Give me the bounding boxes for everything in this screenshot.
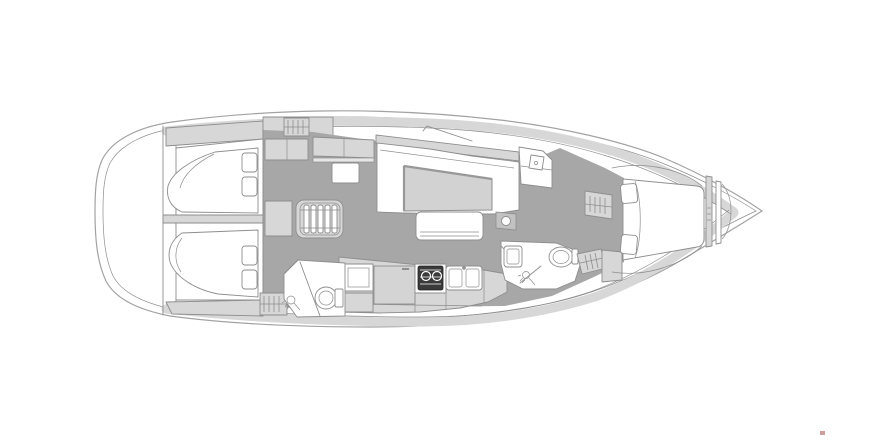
aft-head xyxy=(282,260,345,317)
companionway-stairs xyxy=(296,200,343,238)
aft-head-room xyxy=(284,260,345,317)
pillow xyxy=(242,153,257,172)
deck-plate-icon xyxy=(502,217,511,226)
watermark-dot xyxy=(820,431,825,435)
pillow xyxy=(242,246,257,265)
bow-bulkhead xyxy=(706,176,712,247)
locker-cabinet xyxy=(265,139,308,160)
stair-step xyxy=(325,205,330,233)
pillow xyxy=(620,183,638,203)
forward-cabinet xyxy=(602,250,622,282)
bow-shelf xyxy=(716,181,721,244)
pillow xyxy=(620,234,638,254)
nav-seat-edge xyxy=(313,158,374,162)
aft-deck-strip-starboard xyxy=(166,300,263,316)
aft-cabin-port xyxy=(168,139,263,215)
toilet-icon xyxy=(549,247,573,267)
toilet-tank xyxy=(335,289,343,307)
fridge-icon xyxy=(374,266,415,304)
deck-plan xyxy=(0,0,890,446)
hanging-locker-port xyxy=(284,118,309,136)
stair-step xyxy=(304,205,309,233)
stair-step xyxy=(318,205,323,233)
nav-seat xyxy=(313,137,374,158)
chart-table xyxy=(332,163,359,183)
stair-step xyxy=(311,205,316,233)
toilet-icon xyxy=(315,287,337,309)
hanging-locker-starboard xyxy=(260,293,287,315)
locker-cabinet xyxy=(265,201,292,236)
pillow xyxy=(242,177,257,196)
pillow xyxy=(242,270,257,289)
sink-faucet xyxy=(462,266,466,270)
stair-step xyxy=(332,205,337,233)
cabin-divider xyxy=(163,215,263,223)
wetbar-sink-icon xyxy=(529,155,544,170)
aft-cabin-starboard xyxy=(169,223,263,300)
galley-cabinet xyxy=(344,293,373,312)
hanging-locker-forward-cabin xyxy=(585,191,612,219)
deck-plan-canvas xyxy=(0,0,890,446)
toilet-tank xyxy=(572,249,578,264)
